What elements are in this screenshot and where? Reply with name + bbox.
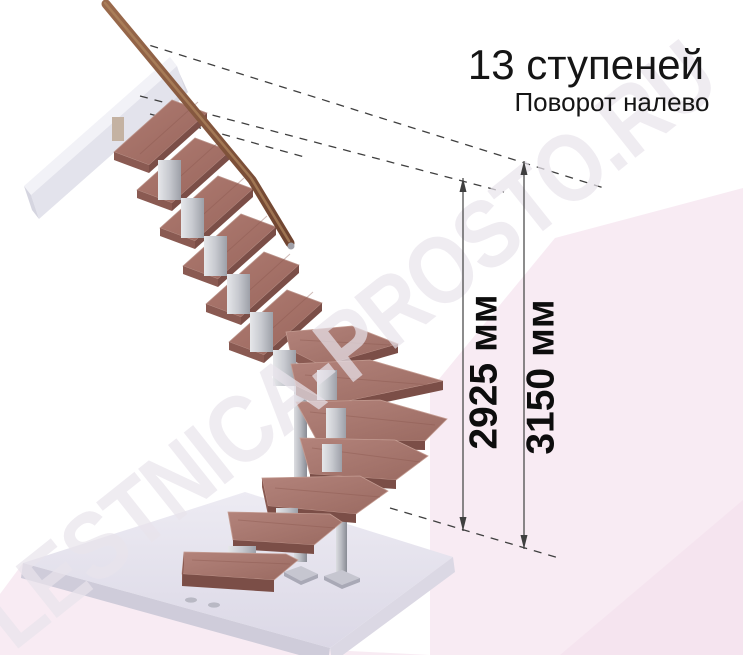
leg-base xyxy=(208,602,220,607)
leg-base xyxy=(185,597,197,602)
dimension-label-outer: 3150 мм xyxy=(520,299,563,454)
dimension-label-inner: 2925 мм xyxy=(463,294,506,449)
page-subtitle: Поворот налево xyxy=(514,87,709,117)
baluster-bracket xyxy=(112,117,124,141)
staircase-diagram: LESTNICA-PROSTO.RU 2925 мм 3150 мм 13 ст… xyxy=(0,0,743,655)
diagram-canvas: LESTNICA-PROSTO.RU 2925 мм 3150 мм 13 ст… xyxy=(0,0,743,655)
spacer-cylinder xyxy=(322,444,342,472)
page-title: 13 ступеней xyxy=(468,41,704,88)
handrail-end-ferrule xyxy=(288,243,295,250)
